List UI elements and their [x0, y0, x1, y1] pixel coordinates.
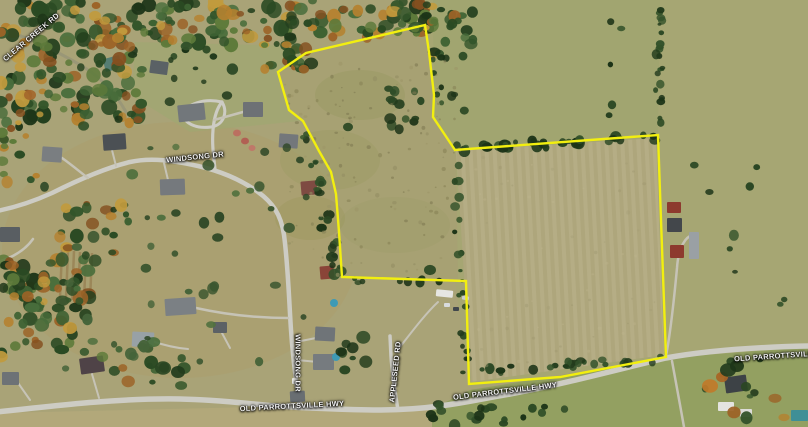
- aerial-imagery: [0, 0, 808, 427]
- swimming-pool: [330, 299, 338, 307]
- road-marker: [292, 378, 297, 384]
- satellite-map[interactable]: CLEAR CREEK RD WINDSONG DR WINDSONG DR A…: [0, 0, 808, 427]
